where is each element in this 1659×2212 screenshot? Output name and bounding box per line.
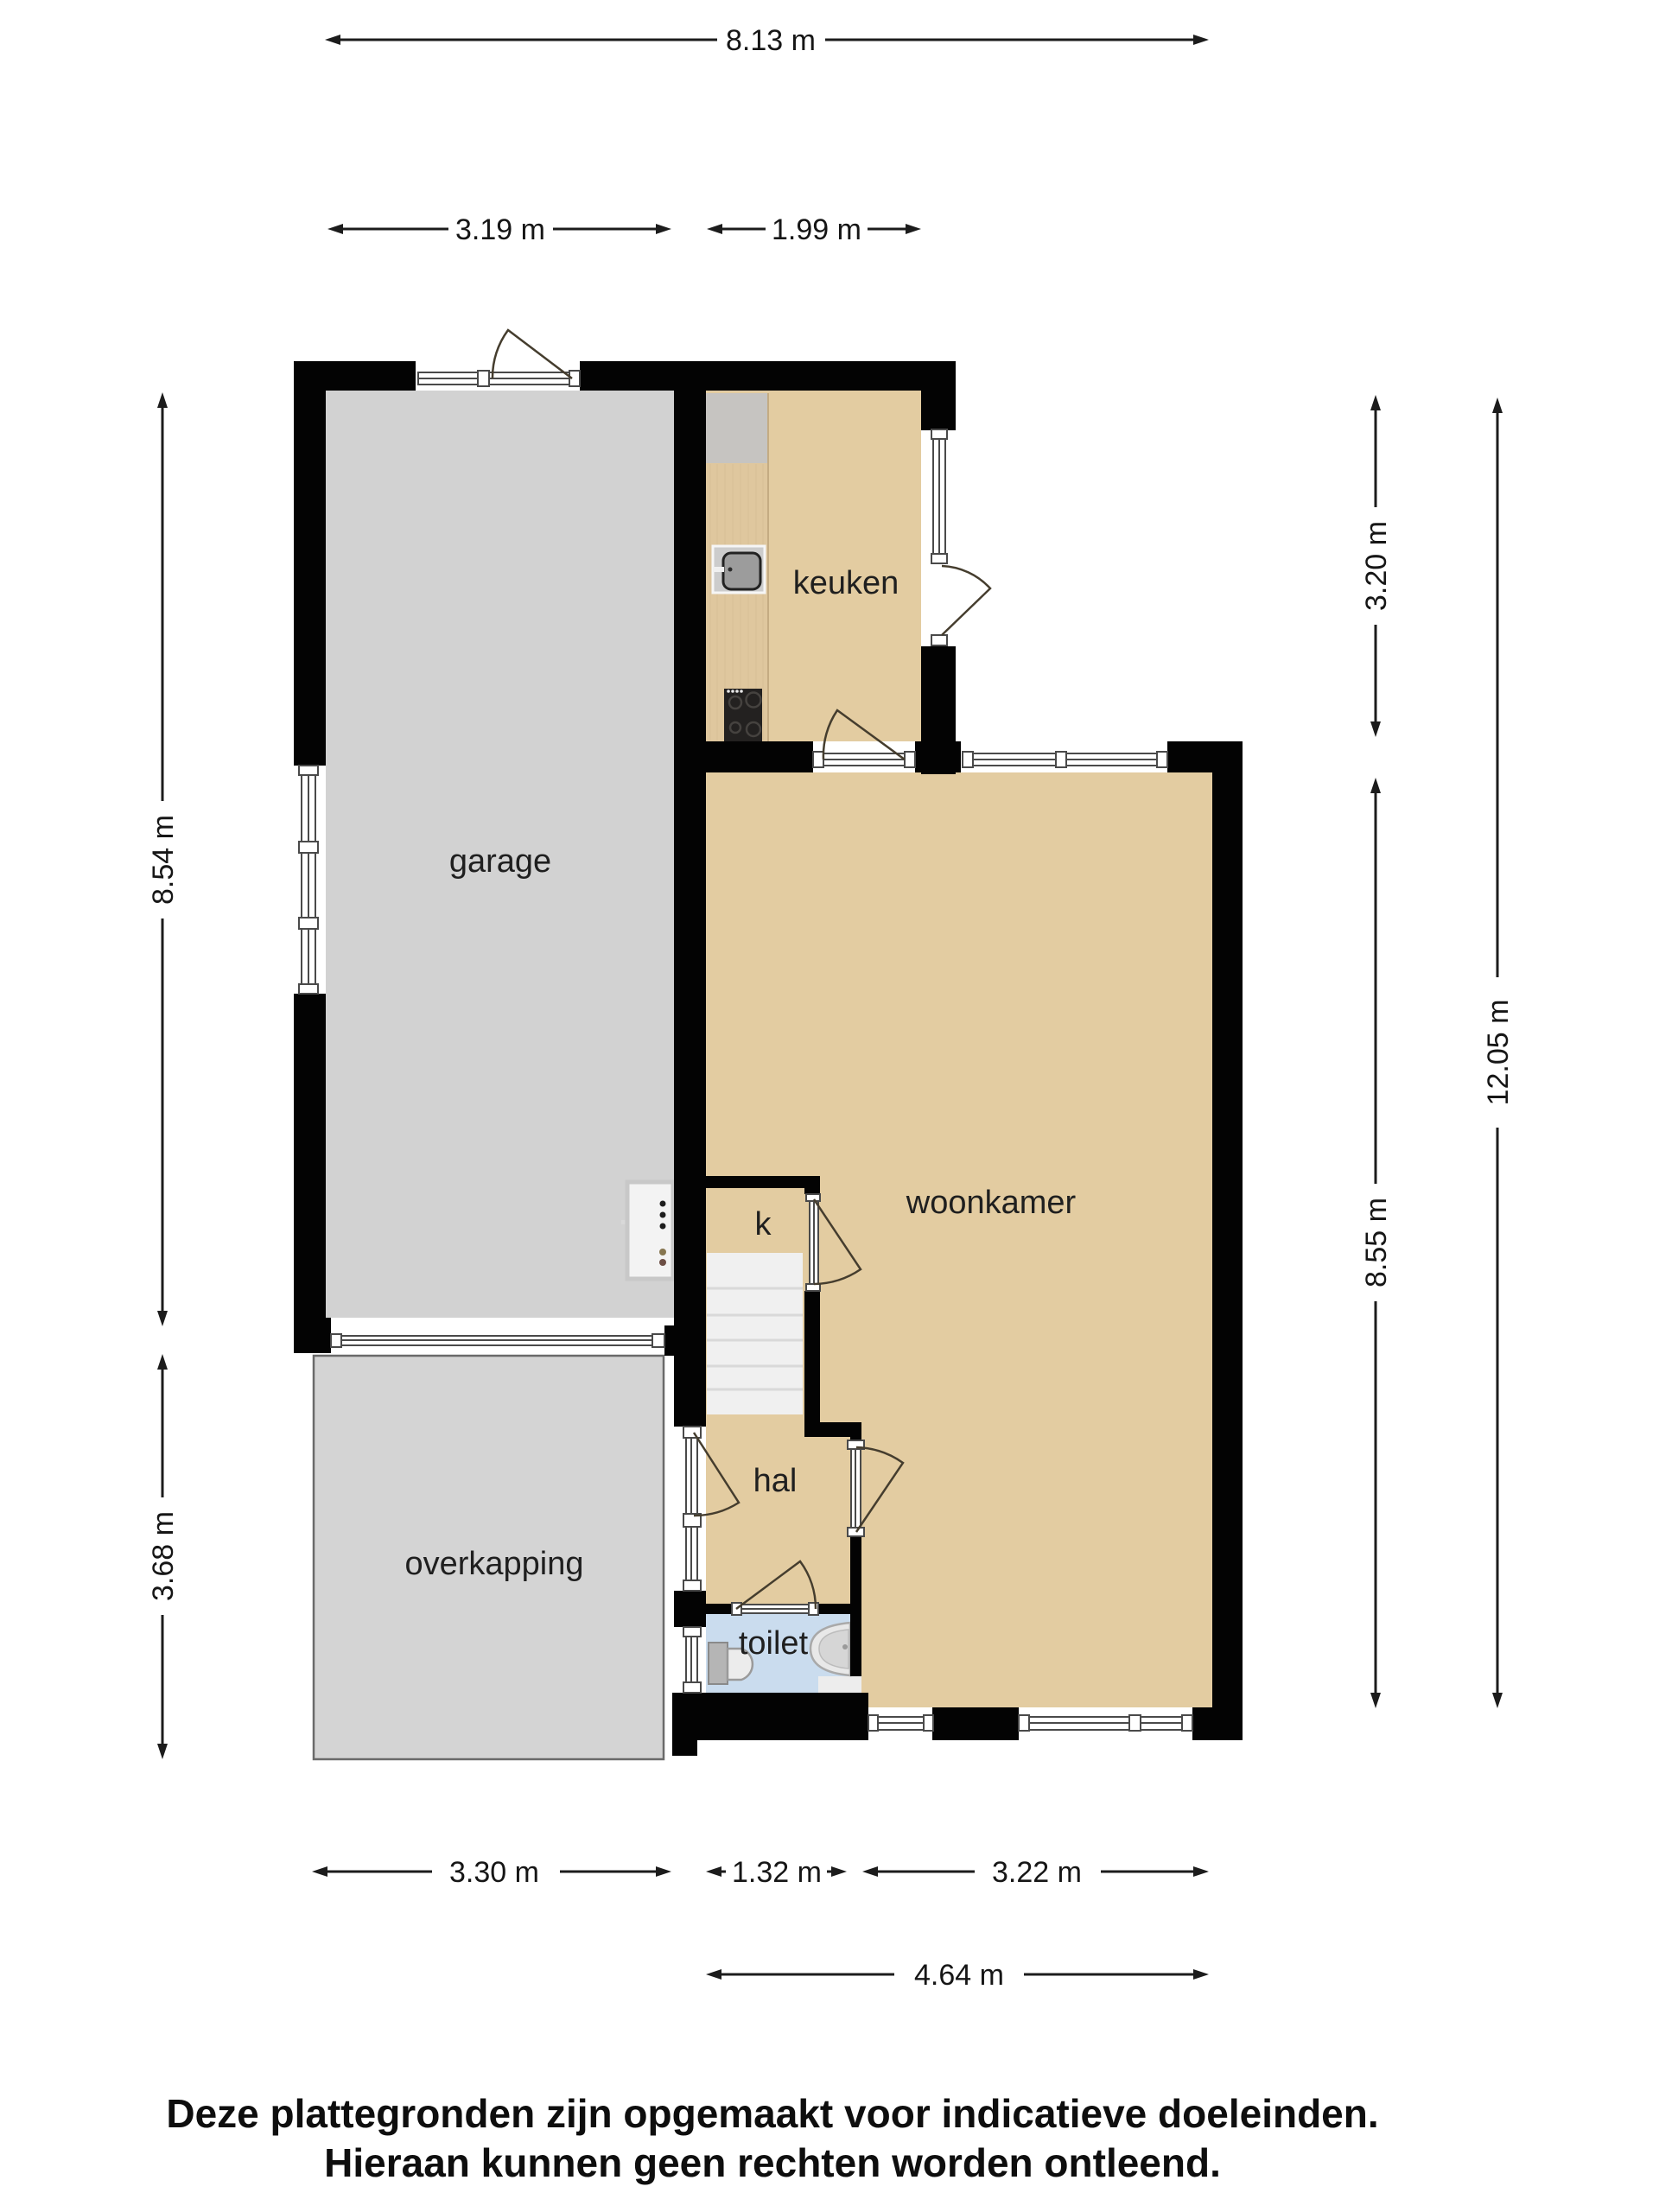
svg-text:keuken: keuken	[793, 565, 899, 601]
svg-text:8.13 m: 8.13 m	[726, 24, 816, 57]
svg-text:3.20 m: 3.20 m	[1360, 521, 1393, 611]
svg-text:k: k	[755, 1206, 772, 1243]
svg-text:garage: garage	[449, 843, 551, 880]
svg-text:overkapping: overkapping	[404, 1546, 583, 1582]
svg-text:toilet: toilet	[739, 1625, 809, 1662]
svg-text:1.99 m: 1.99 m	[772, 213, 861, 246]
svg-text:8.54 m: 8.54 m	[147, 815, 180, 905]
svg-text:4.64 m: 4.64 m	[914, 1959, 1004, 1992]
svg-text:3.68 m: 3.68 m	[147, 1511, 180, 1601]
svg-text:8.55 m: 8.55 m	[1360, 1198, 1393, 1287]
svg-text:hal: hal	[753, 1463, 798, 1499]
svg-text:3.30 m: 3.30 m	[449, 1856, 539, 1889]
svg-text:3.19 m: 3.19 m	[455, 213, 545, 246]
svg-text:3.22 m: 3.22 m	[992, 1856, 1082, 1889]
svg-text:12.05 m: 12.05 m	[1482, 1000, 1515, 1106]
svg-text:Hieraan kunnen geen rechten wo: Hieraan kunnen geen rechten worden ontle…	[324, 2140, 1221, 2185]
svg-text:Deze plattegronden zijn opgema: Deze plattegronden zijn opgemaakt voor i…	[166, 2091, 1378, 2136]
svg-text:woonkamer: woonkamer	[906, 1185, 1077, 1221]
svg-text:1.32 m: 1.32 m	[732, 1856, 822, 1889]
